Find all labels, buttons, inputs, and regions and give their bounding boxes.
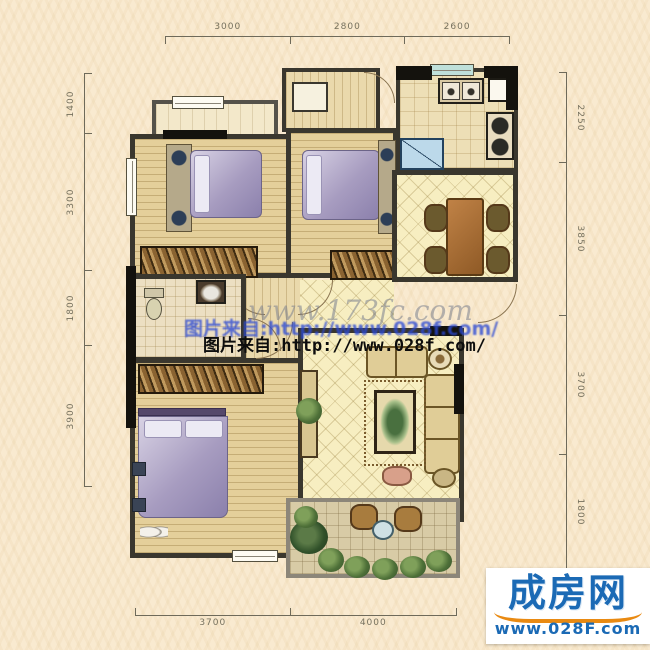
stove-two-burners: [486, 112, 514, 160]
dimension-label: 3000: [214, 22, 241, 32]
dimension-ruler-top: 3000 2800 2600: [165, 36, 510, 44]
dimension-label: 2600: [444, 22, 471, 32]
terrace-shrub: [426, 550, 452, 572]
dimension-label: 2800: [334, 22, 361, 32]
bed-pillow: [185, 420, 223, 438]
dimension-segment: 3000: [165, 36, 290, 44]
dimension-segment: 3700: [559, 315, 567, 455]
dimension-ruler-bottom: 3700 4000: [135, 608, 457, 616]
kitchen-window: [430, 64, 474, 76]
master-nightstand: [132, 498, 146, 512]
bedroom1-window: [126, 158, 137, 216]
wall-segment: [506, 76, 518, 110]
bedroom2-double-bed: [302, 150, 380, 220]
terrace-shrub: [318, 548, 344, 572]
terrace-chair: [394, 506, 422, 532]
dimension-segment: 2600: [404, 36, 510, 44]
wash-basin: [196, 280, 226, 304]
toilet-bowl: [146, 298, 162, 320]
dimension-label: 2250: [575, 104, 585, 131]
terrace-shrub: [294, 506, 318, 528]
dimension-segment: 1800: [84, 270, 92, 345]
toilet-tank: [144, 288, 164, 298]
dimension-segment: 2250: [559, 72, 567, 162]
sink-basin: [442, 82, 460, 100]
master-wardrobe: [138, 364, 264, 394]
dimension-label: 4000: [360, 618, 387, 628]
dining-chair: [424, 204, 448, 232]
master-double-bed: [138, 416, 228, 518]
dining-table: [446, 198, 484, 276]
dimension-segment: 3900: [84, 345, 92, 487]
wall-segment: [396, 66, 432, 80]
dimension-label: 3300: [66, 189, 76, 216]
logo-url: www.028F.com: [495, 619, 642, 638]
dining-chair: [486, 204, 510, 232]
ottoman: [382, 466, 412, 486]
sink-basin: [462, 82, 480, 100]
floor-plan-page: { "dimensions": { "top": ["3000", "2800"…: [0, 0, 650, 650]
tv-plant: [296, 398, 322, 424]
dimension-label: 3850: [575, 225, 585, 252]
dimension-segment: 1800: [559, 454, 567, 570]
master-nightstand: [132, 462, 146, 476]
coffee-table: [374, 390, 416, 454]
master-bed-headboard: [138, 408, 226, 416]
watermark-black-text: 图片来自:http://www.028f.com/: [203, 331, 486, 356]
dining-chair: [424, 246, 448, 274]
dimension-label: 3700: [199, 618, 226, 628]
dimension-ruler-left: 1400 3300 1800 3900: [84, 73, 92, 487]
dining-chair: [486, 246, 510, 274]
dimension-segment: 3850: [559, 162, 567, 314]
dimension-label: 3900: [66, 402, 76, 429]
shoe-cabinet: [292, 82, 328, 112]
bed-pillow: [306, 155, 322, 215]
dimension-ruler-right: 2250 3850 3700 1800: [559, 72, 567, 570]
wall-segment: [126, 266, 136, 428]
dimension-segment: 1400: [84, 73, 92, 133]
dimension-label: 1400: [66, 90, 76, 117]
kitchen-double-sink: [438, 78, 484, 104]
round-chair: [432, 468, 456, 488]
terrace-shrub: [400, 556, 426, 578]
dimension-label: 1800: [66, 294, 76, 321]
bedroom2-wardrobe: [330, 250, 400, 280]
entry-door-arc: [364, 72, 395, 103]
washing-machine: [400, 138, 444, 170]
dimension-label: 1800: [575, 499, 585, 526]
bedroom1-double-bed: [190, 150, 262, 218]
wall-segment: [454, 364, 464, 414]
dimension-segment: 2800: [290, 36, 405, 44]
bedroom1-nightstands: [166, 144, 192, 232]
bed-pillow: [144, 420, 182, 438]
slippers: [140, 524, 168, 540]
wall-segment: [163, 130, 227, 139]
site-logo: 成房网 www.028F.com: [486, 568, 650, 644]
terrace-shrub: [372, 558, 398, 580]
dimension-segment: 4000: [290, 608, 457, 616]
master-window: [232, 550, 278, 562]
terrace-table: [372, 520, 394, 540]
dimension-label: 3700: [575, 371, 585, 398]
dimension-segment: 3700: [135, 608, 290, 616]
balcony-window: [172, 96, 224, 109]
dimension-segment: 3300: [84, 133, 92, 269]
terrace-shrub: [344, 556, 370, 578]
bed-pillow: [194, 155, 210, 213]
